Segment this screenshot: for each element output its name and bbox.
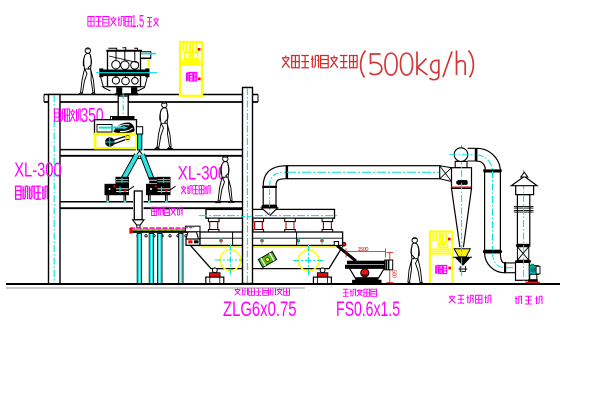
svg-text:ZLG6x0.75: ZLG6x0.75 — [223, 297, 297, 321]
svg-text:FS0.6x1.5: FS0.6x1.5 — [336, 297, 400, 321]
svg-text:XL-300: XL-300 — [178, 162, 227, 184]
svg-text:XL-300: XL-300 — [14, 159, 62, 182]
svg-text:1.5: 1.5 — [131, 11, 144, 31]
svg-text:1500: 1500 — [358, 247, 369, 253]
svg-text:500: 500 — [391, 270, 397, 278]
